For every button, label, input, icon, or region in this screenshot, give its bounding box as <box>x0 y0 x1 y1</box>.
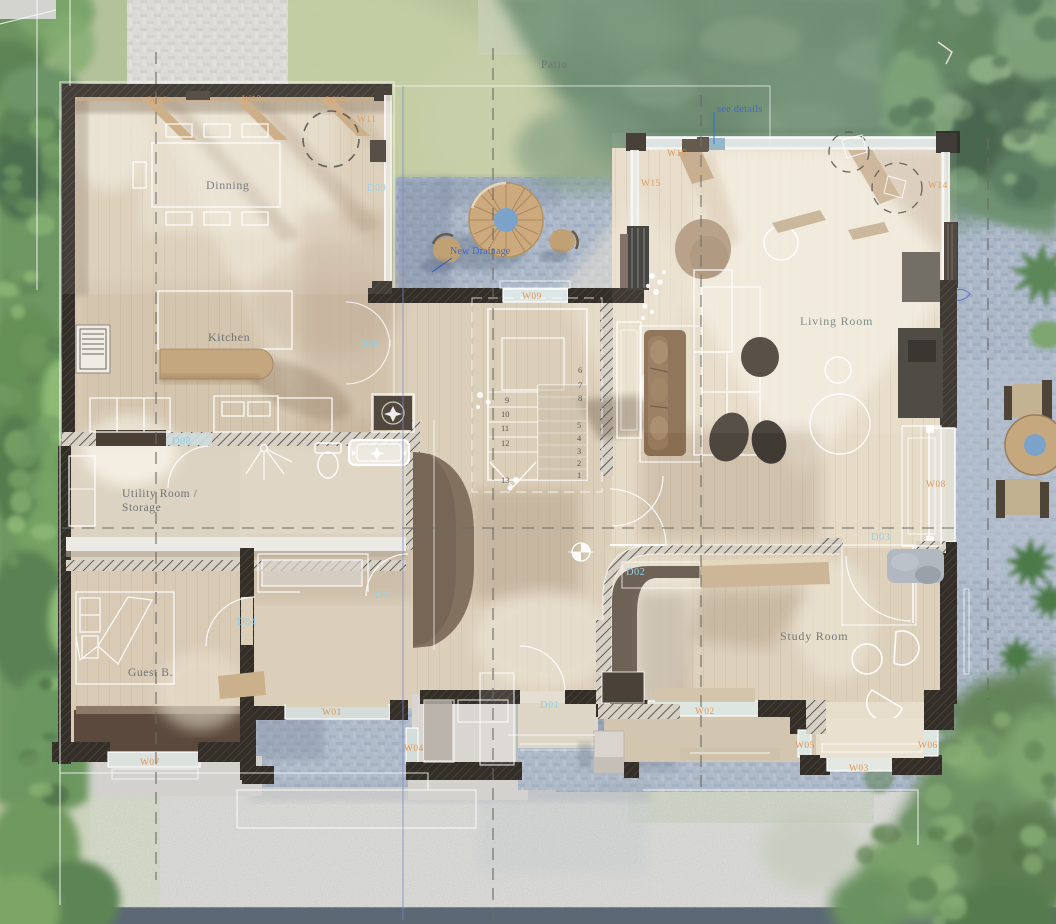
svg-text:8: 8 <box>578 393 582 403</box>
svg-text:Study Room: Study Room <box>780 629 848 643</box>
svg-text:Kitchen: Kitchen <box>208 330 250 344</box>
svg-text:6: 6 <box>578 365 582 375</box>
svg-text:Patio: Patio <box>541 59 568 71</box>
svg-text:W06: W06 <box>918 741 938 751</box>
svg-text:W07: W07 <box>140 758 160 768</box>
svg-text:12: 12 <box>501 438 510 448</box>
svg-text:Utility Room /: Utility Room / <box>122 488 198 500</box>
svg-text:D02: D02 <box>626 567 645 578</box>
svg-text:11: 11 <box>501 423 509 433</box>
svg-text:2: 2 <box>577 458 581 468</box>
svg-text:W04: W04 <box>404 744 424 754</box>
svg-text:Guest B.: Guest B. <box>128 667 173 679</box>
svg-text:W02: W02 <box>695 707 715 717</box>
svg-text:D08: D08 <box>172 436 191 447</box>
svg-text:D03: D03 <box>871 532 890 543</box>
svg-text:5: 5 <box>577 420 581 430</box>
svg-text:7: 7 <box>578 380 582 390</box>
svg-text:W05: W05 <box>795 741 815 751</box>
svg-text:9: 9 <box>505 395 509 405</box>
svg-text:Storage: Storage <box>122 502 161 514</box>
svg-text:New Drainage: New Drainage <box>450 246 511 257</box>
svg-text:1: 1 <box>577 470 581 480</box>
svg-text:see details: see details <box>717 104 763 115</box>
svg-text:D06: D06 <box>360 339 379 350</box>
svg-text:3: 3 <box>577 446 581 456</box>
svg-text:13: 13 <box>501 475 510 485</box>
svg-text:D01: D01 <box>540 700 559 711</box>
svg-text:D07: D07 <box>375 590 394 601</box>
svg-text:W03: W03 <box>849 764 869 774</box>
svg-text:W01: W01 <box>322 708 342 718</box>
svg-text:W08: W08 <box>926 480 946 490</box>
svg-text:10: 10 <box>501 409 510 419</box>
svg-text:W09: W09 <box>522 292 542 302</box>
svg-text:D04: D04 <box>237 617 257 628</box>
